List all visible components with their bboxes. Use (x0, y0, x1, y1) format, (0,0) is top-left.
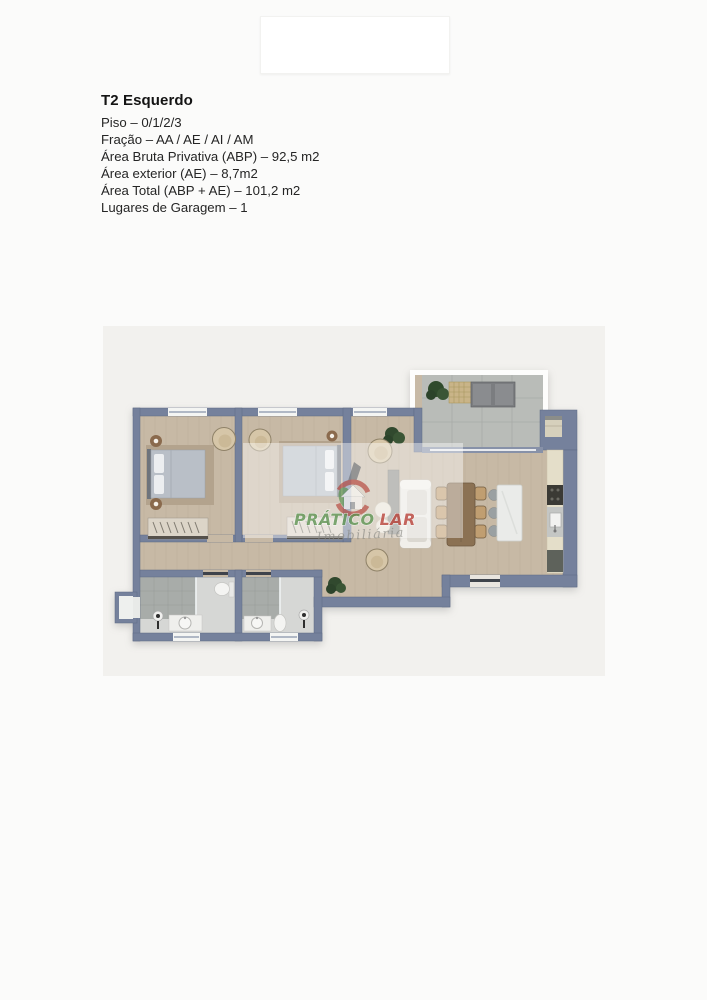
property-title: T2 Esquerdo (101, 92, 319, 109)
outdoor-mat (449, 382, 471, 403)
kitchen-sink (547, 507, 563, 537)
left-bay-window (119, 596, 133, 619)
property-parking: Lugares de Garagem – 1 (101, 199, 319, 216)
property-info: T2 Esquerdo Piso – 0/1/2/3 Fração – AA /… (101, 92, 319, 216)
armchair (213, 428, 236, 451)
header-logo-placeholder (260, 16, 450, 74)
bed-1 (147, 449, 205, 499)
appliance (547, 550, 563, 572)
sun-lounger (471, 382, 515, 407)
left-bay-opening (133, 597, 140, 618)
property-fraction: Fração – AA / AE / AI / AM (101, 131, 319, 148)
floor-plan-svg: PRÁTICOLAR Imobiliária (103, 326, 605, 676)
tub-chair (366, 549, 388, 571)
floor-plan-image: PRÁTICOLAR Imobiliária (103, 326, 605, 676)
toilet (274, 615, 286, 632)
wardrobe-1 (148, 518, 208, 539)
cooktop (547, 485, 563, 505)
property-exterior-area: Área exterior (AE) – 8,7m2 (101, 165, 319, 182)
kitchen-island (489, 485, 523, 541)
listing-page: { "page": { "background": "#fbfbfa" }, "… (0, 0, 707, 1000)
watermark: PRÁTICOLAR Imobiliária (243, 443, 463, 545)
nightstand-lamp (327, 431, 338, 442)
property-floor: Piso – 0/1/2/3 (101, 114, 319, 131)
kitchen-counter (547, 450, 563, 573)
entry-closet (545, 416, 562, 437)
vanity-sink (169, 615, 202, 631)
property-gross-area: Área Bruta Privativa (ABP) – 92,5 m2 (101, 148, 319, 165)
property-total-area: Área Total (ABP + AE) – 101,2 m2 (101, 182, 319, 199)
vanity-sink (244, 616, 271, 631)
